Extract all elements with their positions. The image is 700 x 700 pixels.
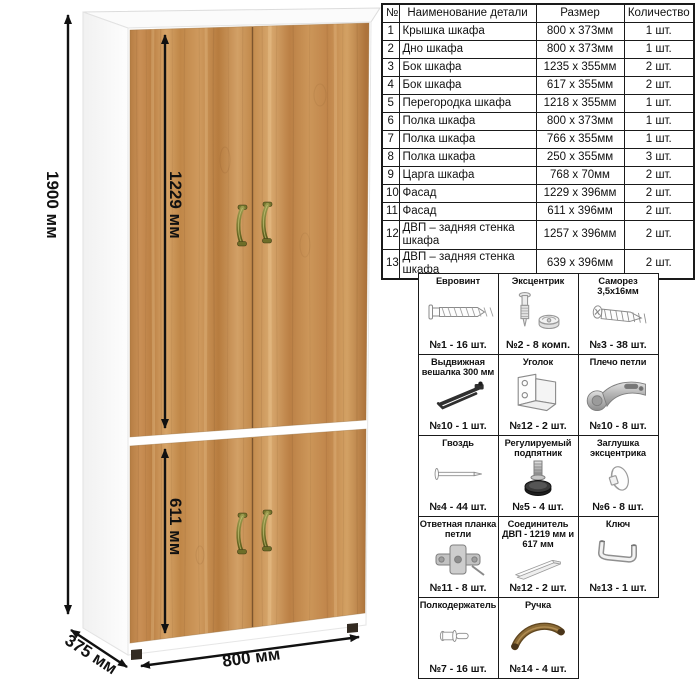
- part-qty: 1 шт.: [624, 95, 694, 113]
- table-row: 11Фасад611 х 396мм2 шт.: [382, 203, 694, 221]
- part-name: Фасад: [399, 185, 536, 203]
- part-qty: 2 шт.: [624, 59, 694, 77]
- hardware-item: Евровинт №1 - 16 шт.: [418, 273, 499, 355]
- hardware-item: Регулируемый подпятник №5 - 4 шт.: [498, 435, 579, 517]
- part-number: 12: [382, 221, 399, 250]
- part-size: 766 х 355мм: [536, 131, 624, 149]
- table-row: 7Полка шкафа766 х 355мм1 шт.: [382, 131, 694, 149]
- hardware-item-name: Уголок: [499, 355, 578, 367]
- hardware-item: Саморез 3,5х16мм №3 - 38 шт.: [578, 273, 659, 355]
- part-number: 10: [382, 185, 399, 203]
- part-name: Полка шкафа: [399, 113, 536, 131]
- hardware-item-qty: №4 - 44 шт.: [419, 501, 498, 516]
- hardware-item-qty: №3 - 38 шт.: [579, 339, 658, 354]
- cam-cover-icon: [579, 458, 658, 500]
- part-qty: 1 шт.: [624, 41, 694, 59]
- wardrobe-illustration: 1900 мм 1229 мм 611 мм 800 мм 375 мм: [0, 0, 420, 700]
- part-number: 3: [382, 59, 399, 77]
- part-number: 8: [382, 149, 399, 167]
- part-qty: 1 шт.: [624, 113, 694, 131]
- table-row: 4Бок шкафа617 х 355мм2 шт.: [382, 77, 694, 95]
- dimension-width-label: 800 мм: [221, 644, 281, 671]
- part-number: 11: [382, 203, 399, 221]
- hardware-item: Полкодержатель №7 - 16 шт.: [418, 597, 499, 679]
- part-size: 768 х 70мм: [536, 167, 624, 185]
- part-qty: 2 шт.: [624, 203, 694, 221]
- part-name: Крышка шкафа: [399, 23, 536, 41]
- part-size: 617 х 355мм: [536, 77, 624, 95]
- part-number: 7: [382, 131, 399, 149]
- part-size: 800 х 373мм: [536, 113, 624, 131]
- part-size: 611 х 396мм: [536, 203, 624, 221]
- wardrobe-side-panel: [83, 12, 128, 655]
- part-name: Полка шкафа: [399, 149, 536, 167]
- part-size: 1229 х 396мм: [536, 185, 624, 203]
- door-handle-icon: [499, 610, 578, 663]
- table-row: 5Перегородка шкафа1218 х 355мм1 шт.: [382, 95, 694, 113]
- adjustable-foot-icon: [499, 458, 578, 500]
- part-name: Царга шкафа: [399, 167, 536, 185]
- assembly-sheet: 1900 мм 1229 мм 611 мм 800 мм 375 мм № Н…: [0, 0, 700, 700]
- hardware-item-name: Выдвижная вешалка 300 мм: [419, 355, 498, 378]
- table-row: 8Полка шкафа250 х 355мм3 шт.: [382, 149, 694, 167]
- part-name: Бок шкафа: [399, 59, 536, 77]
- part-size: 1257 х 396мм: [536, 221, 624, 250]
- hardware-item-name: Ответная планка петли: [419, 517, 498, 540]
- confirmat-screw-icon: [419, 286, 498, 339]
- col-header-number: №: [382, 4, 399, 23]
- hardware-item-qty: №7 - 16 шт.: [419, 663, 498, 678]
- hardware-item: Выдвижная вешалка 300 мм №10 - 1 шт.: [418, 354, 499, 436]
- part-qty: 2 шт.: [624, 185, 694, 203]
- hinge-mounting-plate-icon: [419, 539, 498, 581]
- part-name: Фасад: [399, 203, 536, 221]
- col-header-part-name: Наименование детали: [399, 4, 536, 23]
- part-number: 6: [382, 113, 399, 131]
- cam-lock-icon: [499, 286, 578, 339]
- table-row: 6Полка шкафа800 х 373мм1 шт.: [382, 113, 694, 131]
- part-size: 1218 х 355мм: [536, 95, 624, 113]
- table-row: 2Дно шкафа800 х 373мм1 шт.: [382, 41, 694, 59]
- hardware-grid: Евровинт №1 - 16 шт. Эксцентрик: [418, 273, 661, 678]
- part-size: 1235 х 355мм: [536, 59, 624, 77]
- table-row: 3Бок шкафа1235 х 355мм2 шт.: [382, 59, 694, 77]
- hardware-item-name: Саморез 3,5х16мм: [579, 274, 658, 297]
- hardware-item-name: Полкодержатель: [419, 598, 498, 610]
- hdf-connector-strip-icon: [499, 550, 578, 582]
- dimension-lower-door-label: 611 мм: [166, 498, 185, 555]
- hardware-item: Соединитель ДВП - 1219 мм и 617 мм №12 -…: [498, 516, 579, 598]
- part-number: 2: [382, 41, 399, 59]
- part-number: 9: [382, 167, 399, 185]
- hardware-item: Гвоздь №4 - 44 шт.: [418, 435, 499, 517]
- self-tapping-screw-icon: [579, 296, 658, 338]
- hardware-item-qty: №13 - 1 шт.: [579, 582, 658, 597]
- part-name: Дно шкафа: [399, 41, 536, 59]
- part-name: Перегородка шкафа: [399, 95, 536, 113]
- part-size: 800 х 373мм: [536, 41, 624, 59]
- col-header-size: Размер: [536, 4, 624, 23]
- part-qty: 1 шт.: [624, 131, 694, 149]
- hardware-item-name: Гвоздь: [419, 436, 498, 448]
- part-size: 800 х 373мм: [536, 23, 624, 41]
- parts-table: № Наименование детали Размер Количество …: [381, 3, 695, 280]
- corner-bracket-icon: [499, 367, 578, 420]
- hardware-item: Ответная планка петли №11 - 8 шт.: [418, 516, 499, 598]
- hardware-item-name: Ручка: [499, 598, 578, 610]
- part-number: 1: [382, 23, 399, 41]
- hardware-item-qty: №10 - 1 шт.: [419, 420, 498, 435]
- hardware-item-name: Евровинт: [419, 274, 498, 286]
- part-number: 5: [382, 95, 399, 113]
- table-row: 12ДВП – задняя стенка шкафа1257 х 396мм2…: [382, 221, 694, 250]
- shelf-pin-icon: [419, 610, 498, 663]
- hardware-item: Плечо петли №10 - 8 шт.: [578, 354, 659, 436]
- hardware-item-qty: №10 - 8 шт.: [579, 420, 658, 435]
- hardware-item: Ключ №13 - 1 шт.: [578, 516, 659, 598]
- nail-icon: [419, 448, 498, 501]
- dimension-height-label: 1900 мм: [43, 171, 62, 239]
- dimension-upper-door-label: 1229 мм: [166, 171, 185, 239]
- hardware-item-name: Соединитель ДВП - 1219 мм и 617 мм: [499, 517, 578, 550]
- table-row: 9Царга шкафа768 х 70мм2 шт.: [382, 167, 694, 185]
- table-row: 1Крышка шкафа800 х 373мм1 шт.: [382, 23, 694, 41]
- parts-table-header-row: № Наименование детали Размер Количество: [382, 4, 694, 23]
- part-qty: 2 шт.: [624, 167, 694, 185]
- part-qty: 1 шт.: [624, 23, 694, 41]
- wardrobe-foot: [347, 623, 358, 633]
- part-name: Бок шкафа: [399, 77, 536, 95]
- hardware-item: Ручка №14 - 4 шт.: [498, 597, 579, 679]
- hardware-item-name: Плечо петли: [579, 355, 658, 367]
- hardware-item-name: Ключ: [579, 517, 658, 529]
- hardware-item-qty: №14 - 4 шт.: [499, 663, 578, 678]
- hardware-item-qty: №11 - 8 шт.: [419, 582, 498, 597]
- hardware-item-name: Заглушка эксцентрика: [579, 436, 658, 459]
- hardware-item-qty: №2 - 8 комп.: [499, 339, 578, 354]
- part-qty: 3 шт.: [624, 149, 694, 167]
- part-qty: 2 шт.: [624, 77, 694, 95]
- hinge-arm-icon: [579, 367, 658, 420]
- part-name: Полка шкафа: [399, 131, 536, 149]
- part-name: ДВП – задняя стенка шкафа: [399, 221, 536, 250]
- pull-out-hanger-icon: [419, 377, 498, 419]
- table-row: 10Фасад1229 х 396мм2 шт.: [382, 185, 694, 203]
- part-size: 250 х 355мм: [536, 149, 624, 167]
- hex-key-icon: [579, 529, 658, 582]
- hardware-item-qty: №5 - 4 шт.: [499, 501, 578, 516]
- hardware-item-name: Эксцентрик: [499, 274, 578, 286]
- hardware-item: Уголок №12 - 2 шт.: [498, 354, 579, 436]
- hardware-item: Заглушка эксцентрика №6 - 8 шт.: [578, 435, 659, 517]
- hardware-item-qty: №12 - 2 шт.: [499, 582, 578, 597]
- part-number: 13: [382, 249, 399, 278]
- hardware-item-qty: №12 - 2 шт.: [499, 420, 578, 435]
- part-number: 4: [382, 77, 399, 95]
- hardware-item-name: Регулируемый подпятник: [499, 436, 578, 459]
- part-qty: 2 шт.: [624, 221, 694, 250]
- col-header-quantity: Количество: [624, 4, 694, 23]
- wardrobe-foot: [131, 649, 142, 660]
- hardware-item-qty: №6 - 8 шт.: [579, 501, 658, 516]
- hardware-item: Эксцентрик №2 - 8 комп.: [498, 273, 579, 355]
- hardware-item-qty: №1 - 16 шт.: [419, 339, 498, 354]
